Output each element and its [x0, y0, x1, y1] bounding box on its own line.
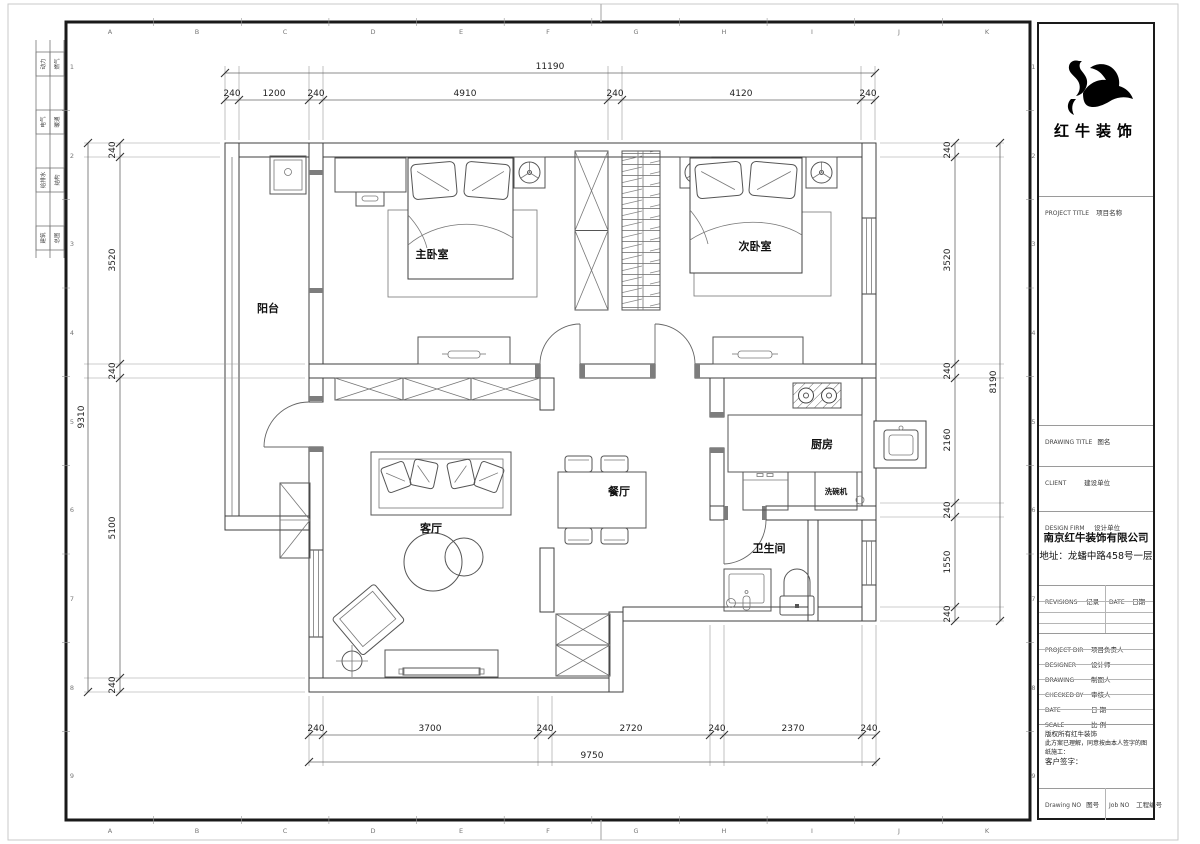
windows	[309, 218, 876, 637]
signoff-stamp-boxes: 动力 燃气 电气 暖通 给排水 结构 建筑 总图	[36, 40, 64, 258]
drawing-sheet: A B C D E F G H I J K A B C D E F G H I …	[0, 0, 1200, 844]
dim: 240	[108, 141, 118, 158]
room-label-master-bedroom: 主卧室	[416, 247, 449, 261]
grid-number: 6	[1031, 506, 1035, 514]
company-logo-icon	[1057, 52, 1137, 124]
fridge	[743, 472, 788, 510]
dim: 2160	[943, 428, 953, 451]
dim: 240	[307, 724, 324, 734]
dim: 240	[943, 362, 953, 379]
stamp-label: 总图	[53, 232, 61, 244]
dining-furniture	[558, 456, 646, 544]
grid-number: 8	[1031, 684, 1035, 692]
client-cn: 建设单位	[1084, 479, 1110, 487]
kitchen-counter	[728, 415, 862, 472]
sheet-border	[8, 4, 1178, 840]
grid-number: 6	[70, 506, 74, 514]
dim: 2720	[620, 724, 643, 734]
grid-letter: K	[985, 28, 990, 36]
dim: 3520	[108, 248, 118, 271]
dim: 240	[536, 724, 553, 734]
room-label-bathroom: 卫生间	[753, 541, 786, 555]
stamp-label: 结构	[53, 174, 61, 186]
revisions-table-divider	[1105, 585, 1106, 633]
label-dishwasher: 洗碗机	[825, 486, 848, 496]
dim: 240	[108, 362, 118, 379]
grid-letter: B	[195, 28, 199, 36]
drawing-no-cell: Drawing NO 图号	[1045, 792, 1099, 811]
drawing-no-cn: 图号	[1086, 801, 1099, 809]
grid-number: 4	[1031, 329, 1035, 337]
dim: 240	[307, 89, 324, 99]
dim: 3520	[943, 248, 953, 271]
grid-letter: C	[283, 28, 288, 36]
date-header-cn: 日期	[1132, 598, 1145, 606]
stair-hatch	[622, 151, 660, 310]
project-title-en: PROJECT TITLE	[1045, 210, 1091, 217]
room-label-balcony: 阳台	[257, 301, 279, 315]
job-no-cn: 工程编号	[1136, 801, 1162, 809]
shaft-and-stair	[575, 151, 660, 310]
dim: 240	[223, 89, 240, 99]
stamp-label: 给排水	[39, 171, 47, 188]
copyright-note: 版权所有红牛装饰	[1045, 729, 1149, 739]
project-title-row: PROJECT TITLE 项目名称	[1045, 200, 1122, 219]
dim: 4910	[454, 89, 477, 99]
grid-letter: G	[633, 827, 638, 835]
grid-letter: I	[811, 827, 813, 835]
second-bedroom-furniture	[680, 157, 837, 364]
dim: 240	[708, 724, 725, 734]
agreement-note: 此方案已理解，同意按由本人签字的图纸施工：	[1045, 739, 1149, 758]
drawing-title-cn: 图名	[1097, 438, 1110, 446]
dim: 4120	[730, 89, 753, 99]
stamp-label: 建筑	[39, 232, 47, 244]
grid-letter: B	[195, 827, 199, 835]
grid-letter: F	[546, 827, 550, 835]
grid-letter: D	[370, 28, 375, 36]
dim: 240	[606, 89, 623, 99]
dim-total-bottom: 9750	[581, 751, 604, 761]
grid-letter: J	[897, 28, 900, 36]
grid-number: 7	[1031, 595, 1035, 603]
wardrobe-cabinets	[335, 378, 540, 400]
tv-cabinet	[385, 650, 498, 677]
grid-number: 9	[70, 772, 74, 780]
revisions-cn: 记录	[1086, 598, 1099, 606]
grid-number: 9	[1031, 772, 1035, 780]
grid-letter: E	[459, 28, 463, 36]
room-label-kitchen: 厨房	[811, 437, 833, 451]
grid-letter: F	[546, 28, 550, 36]
grid-letter: E	[459, 827, 463, 835]
grid-letter: H	[722, 827, 727, 835]
doors	[264, 324, 766, 564]
grid-number: 2	[1031, 152, 1035, 160]
grid-letter: C	[283, 827, 288, 835]
balcony-door	[264, 402, 309, 447]
grid-letter: K	[985, 827, 990, 835]
armchair	[332, 584, 405, 656]
drawing-title-en: DRAWING TITLE	[1045, 439, 1092, 446]
job-no-en: Job NO	[1109, 802, 1131, 809]
dim: 2370	[782, 724, 805, 734]
grid-number: 5	[70, 418, 74, 426]
dim: 240	[859, 89, 876, 99]
side-table	[445, 538, 483, 576]
drawing-title-row: DRAWING TITLE 图名	[1045, 429, 1110, 448]
grid-number: 1	[1031, 63, 1035, 71]
dim: 3700	[419, 724, 442, 734]
sofa	[371, 452, 511, 515]
second-bedroom-door	[655, 324, 695, 364]
company-name-logo-text: 红牛装饰	[1039, 120, 1153, 141]
room-label-living-room: 客厅	[419, 521, 442, 535]
dim: 5100	[108, 516, 118, 539]
dim: 240	[108, 676, 118, 693]
master-bedroom-door	[540, 324, 580, 364]
grid-number: 8	[70, 684, 74, 692]
grid-number: 5	[1031, 418, 1035, 426]
grid-number: 3	[70, 240, 74, 248]
grid-number: 2	[70, 152, 74, 160]
dim-total-top: 11190	[536, 62, 565, 72]
grid-number: 1	[70, 63, 74, 71]
dim: 1550	[943, 550, 953, 573]
balcony-fixtures	[270, 156, 310, 558]
stamp-label: 电气	[39, 116, 47, 128]
grid-letter: J	[897, 827, 900, 835]
project-title-cn: 项目名称	[1096, 209, 1122, 217]
grid-number: 7	[70, 595, 74, 603]
grid-number: 4	[70, 329, 74, 337]
storage-x-cabinet	[556, 614, 610, 676]
bed	[690, 158, 802, 273]
floor-level-symbol	[336, 645, 368, 677]
grid-letter: D	[370, 827, 375, 835]
kitchen-bay-sink	[874, 421, 926, 468]
dining-table	[558, 472, 646, 528]
dim: 240	[943, 141, 953, 158]
dim: 240	[860, 724, 877, 734]
company-name: 南京红牛装饰有限公司	[1039, 530, 1153, 545]
client-row: CLIENT 建设单位	[1045, 470, 1110, 489]
dim: 1200	[263, 89, 286, 99]
drawing-no-en: Drawing NO	[1045, 802, 1081, 809]
dim: 240	[943, 605, 953, 622]
stamp-label: 燃气	[53, 58, 61, 70]
dim-total-left: 9310	[77, 405, 87, 428]
grid-number: 3	[1031, 240, 1035, 248]
company-address: 地址：龙蟠中路458号一层	[1039, 548, 1153, 562]
title-block: 红牛装饰 PROJECT TITLE 项目名称 DRAWING TITLE 图名…	[1037, 22, 1155, 820]
grid-letter: G	[633, 28, 638, 36]
stamp-label: 动力	[39, 58, 47, 69]
revisions-header: REVISIONS 记录	[1045, 589, 1099, 608]
grid-letter: A	[108, 827, 113, 835]
room-label-dining-room: 餐厅	[607, 484, 630, 498]
dim: 240	[943, 501, 953, 518]
client-en: CLIENT	[1045, 480, 1079, 487]
vanity-sink	[724, 569, 771, 611]
grid-letter: A	[108, 28, 113, 36]
grid-letter: I	[811, 28, 813, 36]
dim-total-right: 8190	[989, 370, 999, 393]
job-no-cell: Job NO 工程编号	[1109, 792, 1162, 811]
floor-plan-canvas: A B C D E F G H I J K A B C D E F G H I …	[0, 0, 1200, 844]
grid-letter: H	[722, 28, 727, 36]
customer-signature-label: 客户签字：	[1045, 756, 1149, 768]
room-label-second-bedroom: 次卧室	[739, 239, 772, 253]
footer-divider	[1105, 788, 1106, 820]
stamp-label: 暖通	[53, 116, 61, 128]
date-header: DATE 日期	[1109, 589, 1145, 608]
